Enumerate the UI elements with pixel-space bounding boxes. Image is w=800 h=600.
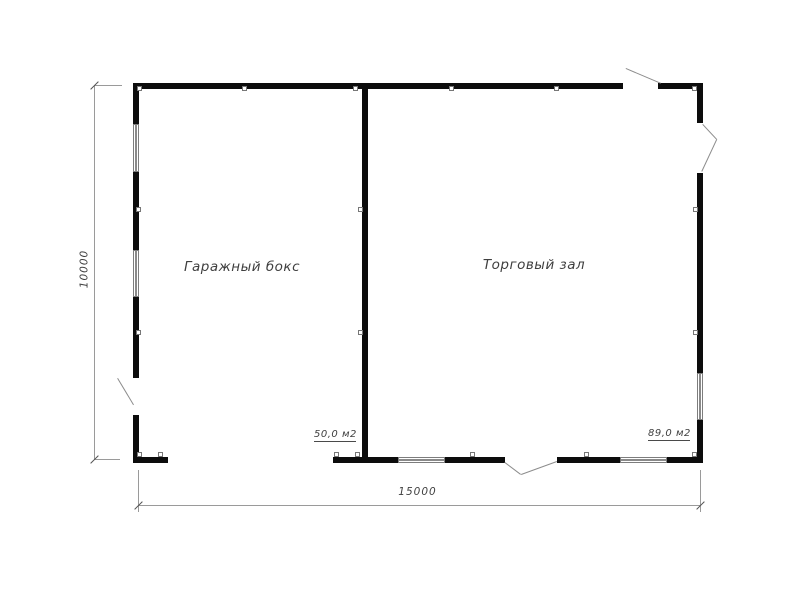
wall-joint-tick [242, 86, 247, 91]
wall-joint-tick [554, 86, 559, 91]
dim-height-ext-top [94, 85, 122, 86]
room-label-garage: Гаражный бокс [162, 259, 322, 275]
dim-height-label: 10000 [79, 242, 91, 297]
window-bottom-1 [398, 457, 445, 463]
wall-joint-tick [693, 330, 698, 335]
area-label-garage: 50,0 м2 [314, 429, 356, 442]
wall-joint-tick [358, 330, 363, 335]
door-swing-bottom-wall-b [521, 461, 557, 475]
wall-left-segment-1 [133, 89, 139, 124]
wall-bottom-segment-3 [557, 457, 620, 463]
wall-joint-tick [692, 452, 697, 457]
wall-joint-tick [158, 452, 163, 457]
wall-partition [362, 89, 368, 457]
wall-right-segment-1 [697, 89, 703, 123]
wall-joint-tick [137, 86, 142, 91]
wall-left-segment-4 [133, 415, 139, 457]
wall-joint-tick [334, 452, 339, 457]
wall-left-segment-3 [133, 297, 139, 378]
window-left-1 [133, 124, 139, 172]
wall-bottom-left-stub [133, 457, 168, 463]
wall-bottom-segment-1 [333, 457, 398, 463]
wall-joint-tick [449, 86, 454, 91]
floor-plan-sheet: 10000 15000 Гаражный бокс Торговый зал 5… [0, 0, 800, 600]
wall-joint-tick [355, 452, 360, 457]
wall-right-segment-3 [697, 420, 703, 457]
door-swing-right-wall-b [701, 140, 717, 172]
wall-joint-tick [136, 330, 141, 335]
door-swing-bottom-wall-a [504, 462, 521, 475]
wall-bottom-segment-4 [667, 457, 703, 463]
dim-height-line [94, 85, 95, 459]
wall-joint-tick [136, 207, 141, 212]
wall-right-segment-2 [697, 173, 703, 373]
wall-joint-tick [692, 86, 697, 91]
area-label-hall: 89,0 м2 [648, 428, 690, 441]
wall-joint-tick [470, 452, 475, 457]
door-swing-left-wall [117, 378, 134, 405]
wall-joint-tick [353, 86, 358, 91]
wall-bottom-segment-2 [445, 457, 505, 463]
door-swing-right-wall-a [702, 124, 717, 140]
door-swing-top-wall [626, 68, 661, 84]
window-left-2 [133, 250, 139, 297]
wall-joint-tick [137, 452, 142, 457]
room-label-hall: Торговый зал [454, 257, 614, 273]
wall-joint-tick [584, 452, 589, 457]
window-bottom-2 [620, 457, 667, 463]
wall-joint-tick [358, 207, 363, 212]
wall-joint-tick [693, 207, 698, 212]
dim-width-label: 15000 [390, 486, 445, 498]
dim-height-ext-bottom [94, 459, 120, 460]
wall-top-left-segment [133, 83, 623, 89]
window-right-1 [697, 373, 703, 420]
dim-width-line [138, 505, 701, 506]
